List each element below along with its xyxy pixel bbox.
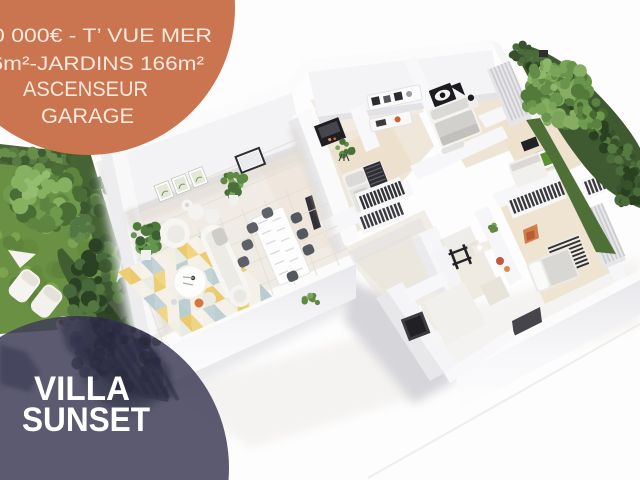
svg-text:0 000€ - T’ VUE MER: 0 000€ - T’ VUE MER [0, 26, 212, 47]
svg-text:GARAGE: GARAGE [41, 105, 134, 128]
svg-text:ASCENSEUR: ASCENSEUR [23, 78, 148, 101]
svg-text:66m²-JARDINS 166m²: 66m²-JARDINS 166m² [0, 54, 204, 75]
svg-text:SUNSET: SUNSET [22, 401, 150, 439]
